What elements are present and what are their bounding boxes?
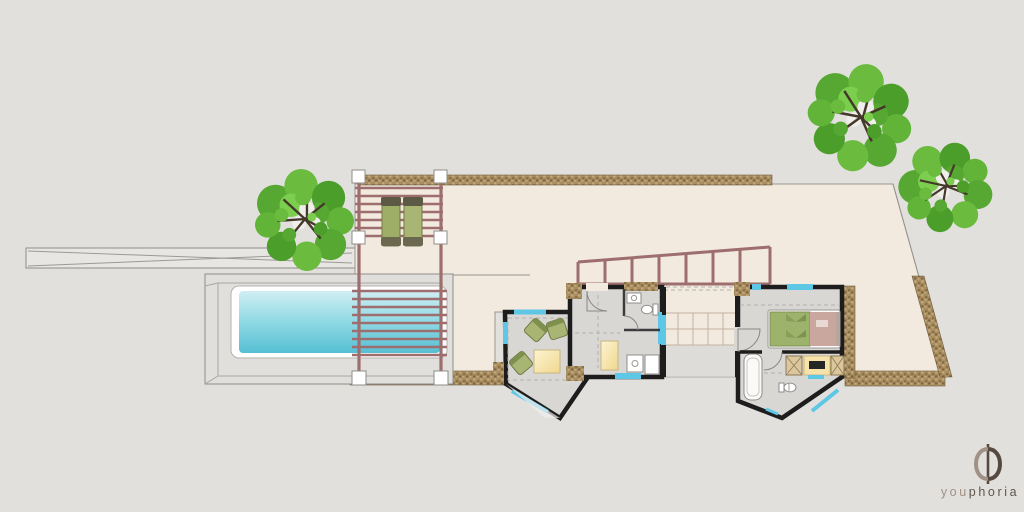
closet-right <box>831 356 844 375</box>
sink <box>627 293 641 303</box>
living-window-north <box>514 310 546 315</box>
double-bed <box>768 310 840 348</box>
logo-text-light: you <box>941 485 969 499</box>
ensuite-toilet <box>779 383 796 392</box>
logo-text-dark: phoria <box>969 485 1019 499</box>
bedroom-tan-corner-nw <box>734 282 750 296</box>
stair-window <box>661 315 666 345</box>
site-plan: youphoria <box>0 0 1024 512</box>
bedroom <box>734 282 844 418</box>
laundry-fixtures <box>627 355 659 374</box>
coffee-table <box>534 350 560 373</box>
hallway <box>566 282 664 381</box>
kitchen-counter <box>601 341 618 370</box>
toilet <box>642 304 659 315</box>
hall-entry-gap <box>586 283 608 291</box>
closet-left <box>786 356 802 375</box>
site-plan-canvas: youphoria <box>0 0 1024 512</box>
border-north <box>360 175 772 185</box>
border-south-east <box>845 371 945 386</box>
hall-tan-north-east <box>624 282 658 291</box>
bed-headboard <box>836 312 840 346</box>
bed-pillow <box>816 320 828 327</box>
hall-tan-corner-nw <box>566 283 582 299</box>
hall-tan-corner-sw <box>566 366 584 381</box>
bedroom-window-north <box>787 284 813 290</box>
living-tan-corner <box>493 362 504 384</box>
staircase <box>663 288 737 377</box>
hall-window-south <box>615 373 641 379</box>
bedroom-window-north-2 <box>752 284 761 290</box>
logo-wordmark: youphoria <box>941 485 1019 499</box>
living-window-west <box>503 322 508 344</box>
